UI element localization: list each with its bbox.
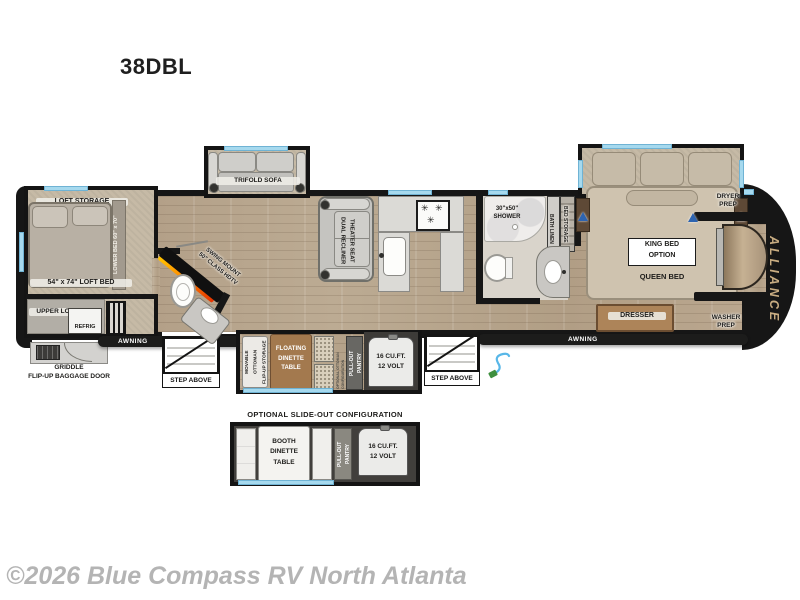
- optional-config-title: OPTIONAL SLIDE-OUT CONFIGURATION: [230, 410, 420, 419]
- dealer-watermark: ©2026 Blue Compass RV North Atlanta: [6, 562, 467, 591]
- loft-door-opening: [152, 258, 160, 294]
- loft-bed-pillow: [32, 206, 68, 228]
- dinette-ottoman-cushion: [314, 364, 334, 390]
- bed-slide-window: [602, 144, 672, 149]
- bed-bolster-pillow: [626, 190, 698, 206]
- fridge-label: 16 CU.FT. 12 VOLT: [369, 352, 413, 372]
- booth-bench: [312, 428, 332, 480]
- fridge-hinge: [380, 425, 390, 431]
- griddle-icon: [36, 345, 60, 360]
- stove: ✳ ✳ ✳: [416, 200, 450, 231]
- shower-drain-icon: [512, 224, 518, 230]
- bath-window: [488, 190, 508, 195]
- refrigerator-12v: 16 CU.FT. 12 VOLT: [368, 337, 414, 387]
- booth-dinette-label: BOOTH DINETTE TABLE: [258, 437, 310, 468]
- bed-storage-label: BED STORAGE: [562, 198, 574, 250]
- optional-pantry-label: PULL-OUT PANTRY: [336, 430, 352, 478]
- griddle-label: GRIDDLE: [30, 364, 108, 372]
- pullout-pantry-label: PULL-OUT PANTRY: [348, 338, 364, 388]
- bath-wall-left: [476, 190, 483, 300]
- loft-window-top: [44, 186, 88, 191]
- cupholder-icon: [320, 270, 330, 280]
- water-hose-icon: [486, 348, 514, 380]
- trifold-sofa-label: TRIFOLD SOFA: [216, 177, 300, 185]
- burner-icon: ✳: [435, 203, 443, 214]
- front-wall-top: [694, 212, 756, 221]
- brand-logo: ALLIANCE: [766, 226, 781, 334]
- kitchen-sink: [383, 237, 406, 276]
- closet-door: [716, 228, 724, 286]
- movable-ottoman-label: MOVABLE OTTOMAN FLIP-UP STORAGE: [244, 338, 270, 386]
- dryer-prep-label: DRYER PREP: [704, 193, 752, 209]
- front-wall-bottom: [694, 292, 756, 301]
- bath-wall-bottom: [476, 298, 540, 304]
- optional-refrigerator-12v: 16 CU.FT. 12 VOLT: [358, 428, 408, 476]
- sofa-slide-window: [224, 146, 288, 151]
- headboard-pillow: [688, 152, 732, 186]
- faucet-icon: [379, 253, 384, 258]
- baggage-door-label: FLIP-UP BAGGAGE DOOR: [16, 373, 122, 381]
- faucet-icon: [562, 270, 566, 274]
- queen-bed-label: QUEEN BED: [620, 272, 704, 281]
- lamp-icon: [688, 213, 698, 222]
- dresser-label: DRESSER: [608, 312, 666, 320]
- fridge-hinge: [388, 334, 398, 340]
- awning-label-left: AWNING: [118, 338, 148, 345]
- loft-bed-pillow: [72, 206, 108, 226]
- refrig-label: REFRIG: [69, 324, 101, 331]
- lamp-icon: [578, 212, 588, 221]
- king-bed-option-box: KING BED OPTION: [628, 238, 696, 266]
- dinette-slide-window: [243, 388, 333, 393]
- bed-slide-window-side: [739, 160, 744, 188]
- toilet-seat: [176, 283, 190, 301]
- headboard-pillow: [592, 152, 636, 186]
- sofa-back-cushion: [218, 152, 256, 172]
- floating-dinette-label: FLOATING DINETTE TABLE: [270, 345, 312, 374]
- kitchen-counter-right: [440, 232, 464, 292]
- bath-toilet-tank: [505, 257, 513, 279]
- loft-window-left: [19, 232, 24, 272]
- optional-slide-window: [238, 480, 334, 485]
- awning-bar-right: AWNING: [478, 334, 748, 345]
- bed-slide-window-side: [578, 160, 583, 188]
- step-above-label-right: STEP ABOVE: [425, 370, 479, 385]
- bath-sink: [544, 260, 562, 284]
- burner-icon: ✳: [427, 215, 435, 226]
- theater-seat-label: DUAL RECLINER THEATER SEAT: [338, 214, 355, 268]
- headboard-pillow: [640, 152, 684, 186]
- shower-label: 30"x50" SHOWER: [486, 206, 528, 222]
- model-number: 38DBL: [120, 54, 192, 80]
- kitchen-window: [388, 190, 432, 195]
- sofa-back-cushion: [256, 152, 294, 172]
- loft-ladder-icon: [106, 301, 126, 335]
- lower-bed-label: LOWER BED 60" x 70": [113, 202, 125, 288]
- entry-door-right: STEP ABOVE: [424, 334, 480, 386]
- optional-fridge-label: 16 CU.FT. 12 VOLT: [359, 442, 407, 462]
- floorplan-image: 38DBL ALLIANCE LOFT STORAGE LOWER BED 60…: [0, 0, 800, 600]
- dinette-ottoman-cushion: [314, 336, 334, 362]
- loft-bed-label: 54" x 74" LOFT BED: [30, 279, 132, 287]
- burner-icon: ✳: [421, 203, 429, 214]
- awning-label-right: AWNING: [568, 336, 598, 343]
- optional-ottoman-note: OPTIONAL OTTOMAN CONFIGURATION: [336, 337, 345, 389]
- cupholder-icon: [320, 200, 330, 210]
- booth-bench: [236, 428, 256, 480]
- washer-prep-label: WASHER PREP: [702, 314, 750, 330]
- step-above-label-left: STEP ABOVE: [163, 372, 219, 387]
